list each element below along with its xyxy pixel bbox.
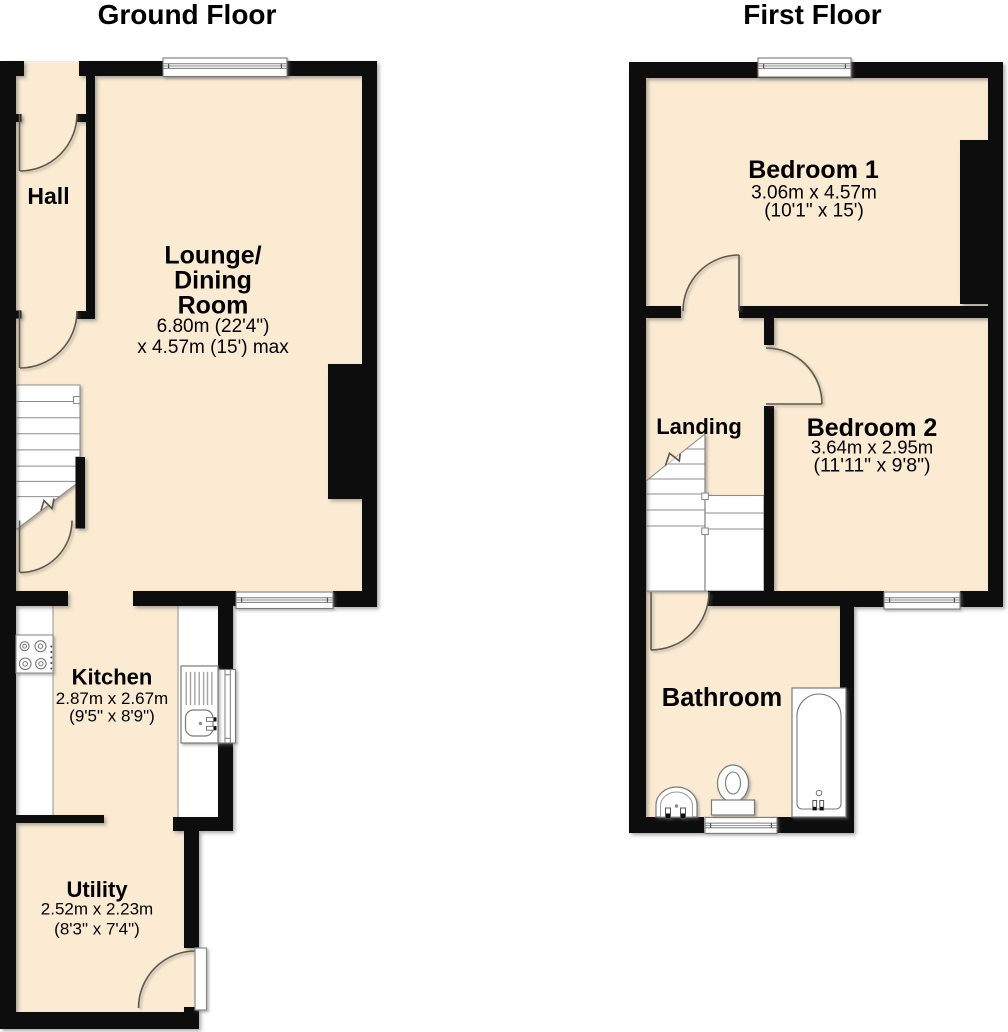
- svg-text:(10'1" x 15'): (10'1" x 15'): [764, 201, 864, 222]
- svg-text:Hall: Hall: [27, 183, 69, 209]
- svg-text:Dining: Dining: [174, 267, 252, 295]
- svg-text:Lounge/: Lounge/: [164, 242, 261, 270]
- svg-text:x 4.57m (15') max: x 4.57m (15') max: [137, 337, 289, 358]
- svg-text:Bathroom: Bathroom: [662, 684, 782, 712]
- svg-text:Utility: Utility: [66, 877, 128, 902]
- svg-text:6.80m (22'4"): 6.80m (22'4"): [157, 316, 270, 337]
- svg-text:Ground Floor: Ground Floor: [98, 0, 277, 30]
- svg-text:Bedroom 1: Bedroom 1: [748, 156, 879, 184]
- svg-text:First Floor: First Floor: [743, 0, 882, 30]
- svg-text:(11'11" x 9'8"): (11'11" x 9'8"): [813, 455, 930, 477]
- svg-text:(9'5" x 8'9"): (9'5" x 8'9"): [69, 707, 155, 726]
- svg-text:Kitchen: Kitchen: [72, 665, 153, 690]
- svg-text:(8'3" x 7'4"): (8'3" x 7'4"): [54, 920, 140, 939]
- svg-text:2.87m x 2.67m: 2.87m x 2.67m: [56, 689, 168, 708]
- svg-text:2.52m x 2.23m: 2.52m x 2.23m: [41, 900, 153, 919]
- svg-text:Landing: Landing: [656, 414, 742, 439]
